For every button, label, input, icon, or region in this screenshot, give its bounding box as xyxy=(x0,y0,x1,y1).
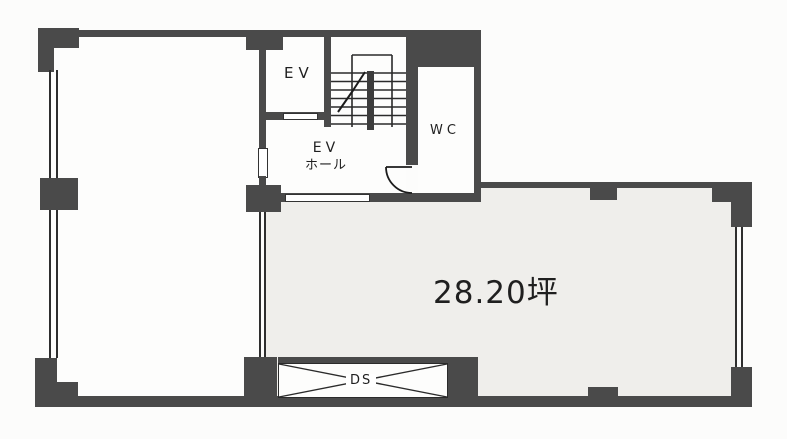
column-top-left-leg xyxy=(38,28,54,72)
label-elevator: EV xyxy=(284,66,314,81)
label-main-area: 28.20坪 xyxy=(433,278,559,309)
wall-wc-left xyxy=(412,67,418,165)
window-right-line2 xyxy=(741,227,743,367)
wall-wc-top-block xyxy=(412,30,481,67)
wall-ds-right-block xyxy=(448,357,478,403)
window-left-lower-line2 xyxy=(56,210,58,358)
label-ev-hall-line2: ホール xyxy=(305,159,347,172)
wc-door xyxy=(380,160,420,200)
window-left-upper-line2 xyxy=(56,70,58,180)
wall-ev-divider-upper xyxy=(259,48,266,148)
partition-main-line1 xyxy=(259,212,261,357)
stairs xyxy=(331,37,406,132)
door-main-entrance xyxy=(285,194,370,202)
stair-center-wall xyxy=(367,71,374,130)
window-right-line1 xyxy=(735,227,737,367)
room-left-tenant xyxy=(43,37,259,396)
door-left-room-to-hall xyxy=(258,148,268,178)
label-ds: DS xyxy=(346,374,376,387)
door-swing-arc xyxy=(386,167,412,193)
label-wc: WC xyxy=(430,124,460,137)
wall-wc-right xyxy=(474,30,481,202)
column-bottom-right xyxy=(731,367,752,407)
column-top-right xyxy=(731,182,752,227)
column-ev-top xyxy=(246,30,283,50)
label-ev-hall: EV ホール xyxy=(305,141,347,172)
pilaster-top xyxy=(590,185,617,200)
window-left-lower-line1 xyxy=(49,210,51,358)
pilaster-bottom xyxy=(588,387,618,396)
partition-main-line2 xyxy=(264,212,266,357)
door-elevator xyxy=(283,113,318,120)
window-left-upper-line1 xyxy=(49,70,51,180)
label-ev-hall-line1: EV xyxy=(305,141,347,155)
floor-plan: EV EV ホール WC DS 28.20坪 xyxy=(0,0,787,439)
column-partition-bottom xyxy=(244,357,277,400)
wall-ev-stairs xyxy=(324,35,331,127)
column-left-middle xyxy=(40,178,78,210)
